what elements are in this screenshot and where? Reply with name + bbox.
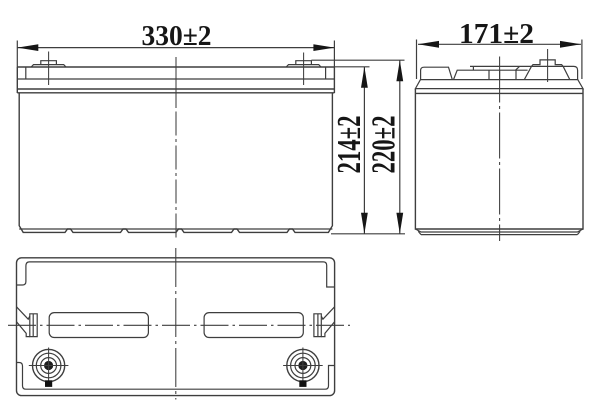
svg-text:214±2: 214±2 xyxy=(331,116,368,174)
svg-text:220±2: 220±2 xyxy=(365,116,402,174)
svg-text:171±2: 171±2 xyxy=(459,19,534,50)
